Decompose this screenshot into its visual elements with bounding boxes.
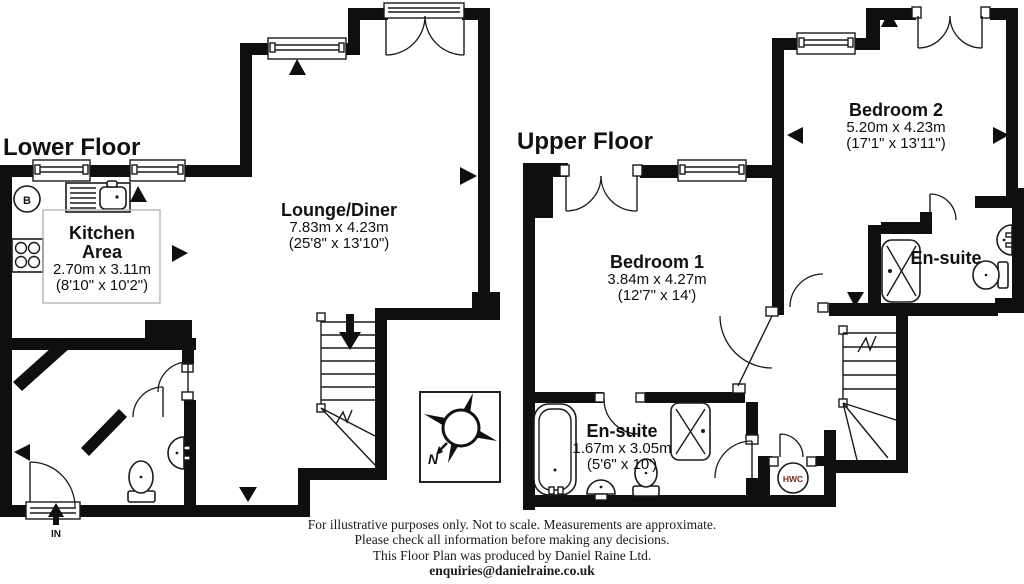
bedroom1-label: Bedroom 1 3.84m x 4.27m (12'7" x 14') xyxy=(577,253,737,304)
upper-stairs xyxy=(839,326,896,460)
lounge-label: Lounge/Diner 7.83m x 4.23m (25'8" x 13'1… xyxy=(259,201,419,252)
bedroom1-dims-metric: 3.84m x 4.27m xyxy=(577,272,737,288)
lounge-dims-metric: 7.83m x 4.23m xyxy=(259,220,419,236)
marker-left-hall xyxy=(14,444,30,461)
kitchen-sink xyxy=(66,181,130,212)
lounge-dims-imperial: (25'8" x 13'10") xyxy=(259,236,419,252)
entrance-door xyxy=(26,462,80,525)
bedroom1-window xyxy=(678,160,746,181)
wc-toilet-icon xyxy=(128,461,155,502)
compass-icon xyxy=(420,392,500,482)
disclaimer-line-1: For illustrative purposes only. Not to s… xyxy=(0,517,1024,532)
lounge-window xyxy=(268,38,346,59)
marker-right-lounge xyxy=(460,167,477,185)
bedroom2-doors xyxy=(912,7,990,48)
contact-email: enquiries@danielraine.co.uk xyxy=(0,563,1024,578)
marker-down-lounge xyxy=(239,487,257,502)
ensuite-upper-door xyxy=(930,194,956,220)
ensuite-lower-dims-metric: 1.67m x 3.05m xyxy=(542,441,702,457)
hwc-door xyxy=(769,434,816,466)
wc-diagonal-wall xyxy=(81,409,127,456)
marker-left-bedroom2 xyxy=(787,127,803,144)
kitchen-window-1 xyxy=(33,160,90,181)
boiler-label: B xyxy=(23,195,31,207)
kitchen-dims-imperial: (8'10" x 10'2") xyxy=(34,278,170,294)
marker-up-lounge xyxy=(289,59,306,75)
ensuite-lower-label: En-suite 1.67m x 3.05m (5'6" x 10') xyxy=(542,422,702,473)
floorplan-page: B IN N HWC Lower Floor Upper Floor Kitch… xyxy=(0,0,1024,584)
bedroom1-name: Bedroom 1 xyxy=(577,253,737,272)
bedroom1-doors xyxy=(560,165,642,211)
ensuite-lower-dims-imperial: (5'6" x 10') xyxy=(542,457,702,473)
lounge-patio-door xyxy=(384,3,464,55)
ensuite-upper-label: En-suite xyxy=(886,249,1006,268)
lobby-door xyxy=(715,435,758,478)
marker-right-kitchen xyxy=(172,245,188,262)
disclaimer-line-3: This Floor Plan was produced by Daniel R… xyxy=(0,548,1024,563)
lower-stairs xyxy=(317,313,375,465)
kitchen-label: Kitchen Area 2.70m x 3.11m (8'10" x 10'2… xyxy=(34,224,170,294)
compass-north-label: N xyxy=(428,451,439,467)
lounge-name: Lounge/Diner xyxy=(259,201,419,220)
hwc-label: HWC xyxy=(783,474,803,484)
disclaimer-footer: For illustrative purposes only. Not to s… xyxy=(0,517,1024,578)
landing-door xyxy=(790,274,828,312)
bedroom1-corner-door xyxy=(720,307,778,393)
lower-floor-title: Lower Floor xyxy=(3,134,140,162)
bedroom2-dims-metric: 5.20m x 4.23m xyxy=(816,120,976,136)
bedroom2-window xyxy=(797,33,855,54)
bedroom2-dims-imperial: (17'1" x 13'11") xyxy=(816,136,976,152)
kitchen-window-2 xyxy=(130,160,185,181)
kitchen-dims-metric: 2.70m x 3.11m xyxy=(34,262,170,278)
bedroom1-dims-imperial: (12'7" x 14') xyxy=(577,288,737,304)
upper-floor-title: Upper Floor xyxy=(517,128,653,156)
bedroom2-label: Bedroom 2 5.20m x 4.23m (17'1" x 13'11") xyxy=(816,101,976,152)
kitchen-name-line1: Kitchen xyxy=(34,224,170,243)
disclaimer-line-2: Please check all information before maki… xyxy=(0,532,1024,547)
ensuite-upper-name: En-suite xyxy=(886,249,1006,268)
ensuite-lower-name: En-suite xyxy=(542,422,702,441)
bedroom2-name: Bedroom 2 xyxy=(816,101,976,120)
marker-up-kitchen xyxy=(130,186,147,202)
kitchen-name-line2: Area xyxy=(34,243,170,262)
